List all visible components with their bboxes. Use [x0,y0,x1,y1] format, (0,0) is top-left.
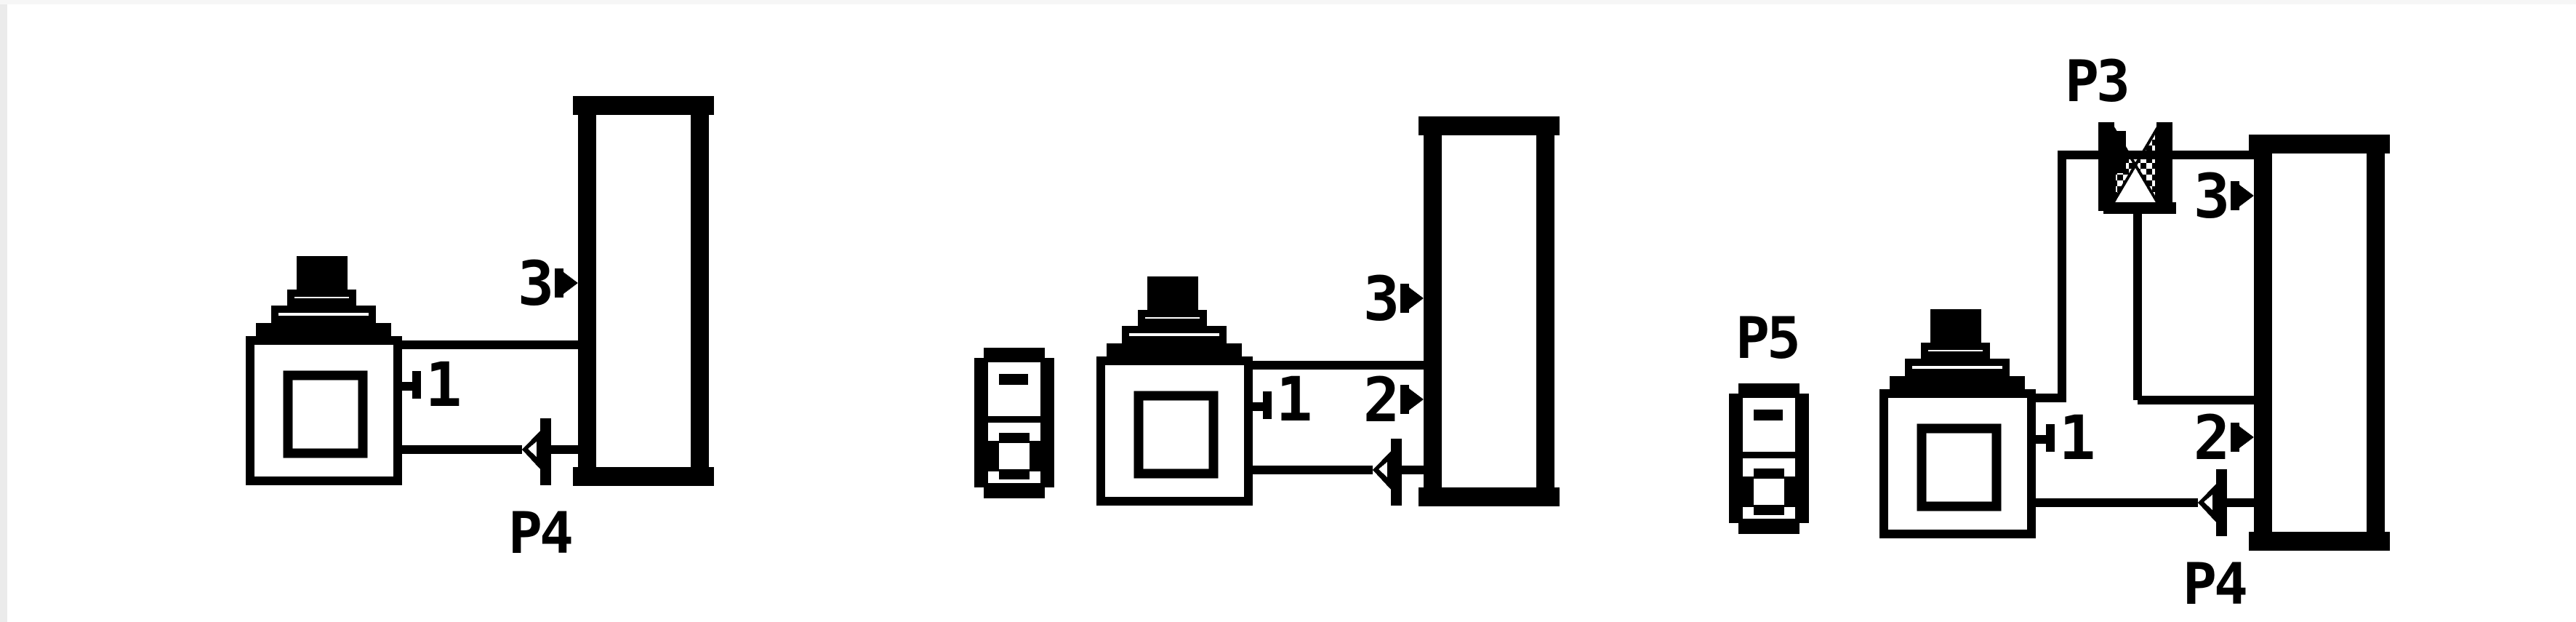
bottoms-pipe[interactable] [402,445,578,454]
valve-drain-pipe[interactable] [2133,214,2254,404]
vessel-port-marker [2036,424,2055,452]
column-port-number[interactable]: 2 [2194,402,2231,474]
flowsheet-canvas: 1 3 P4 [0,0,2576,622]
column-port-number[interactable]: 3 [518,248,555,319]
vessel-port-marker [402,371,421,399]
check-valve-icon[interactable] [1373,439,1402,506]
top-edge-strip [0,0,2576,4]
aux-unit-icon[interactable] [1729,383,1809,534]
column-icon[interactable] [1400,116,1560,506]
column-port-number[interactable]: 3 [2194,161,2231,232]
minus-glyph [999,374,1028,385]
stream-label-p4[interactable]: P4 [508,501,571,567]
aux-unit-icon[interactable] [974,348,1054,498]
column-port-marker [1400,284,1424,414]
column-icon[interactable] [2231,135,2390,551]
column-port-marker [2231,181,2254,452]
stream-label-p3[interactable]: P3 [2065,49,2127,115]
vessel-port-number[interactable]: 1 [1276,364,1313,435]
pot-vessel-icon[interactable] [1884,309,2055,534]
column-port-number[interactable]: 3 [1363,263,1400,335]
column-icon[interactable] [555,96,714,486]
diagram-2: 1 3 2 [974,116,1560,506]
stream-label-p5[interactable]: P5 [1736,306,1798,372]
vessel-port-number[interactable]: 1 [2059,402,2096,474]
check-valve-icon[interactable] [522,418,551,485]
diagram-1: 1 3 P4 [250,96,714,567]
left-edge-strip [0,0,7,622]
crosshatch-valve-icon[interactable] [2098,122,2176,214]
column-port-number[interactable]: 2 [1363,364,1400,436]
overhead-pipe[interactable] [402,340,578,349]
minus-glyph [1754,410,1783,420]
stream-label-p4[interactable]: P4 [2183,552,2246,618]
vessel-port-number[interactable]: 1 [425,349,462,420]
pot-vessel-icon[interactable] [250,256,421,481]
pot-vessel-icon[interactable] [1101,276,1272,501]
column-port-marker [555,268,578,298]
vessel-port-marker [1253,391,1272,419]
diagram-3: P5 P3 P4 [1729,49,2390,618]
check-valve-icon[interactable] [2198,469,2227,536]
